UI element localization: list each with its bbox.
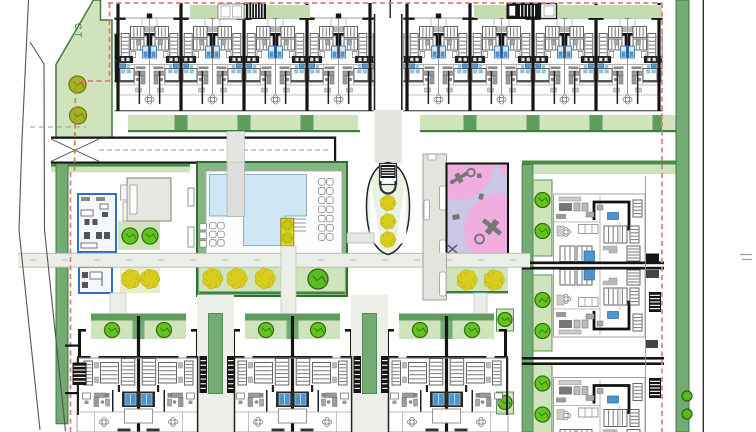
svg-text:C.T: C.T xyxy=(73,23,83,38)
